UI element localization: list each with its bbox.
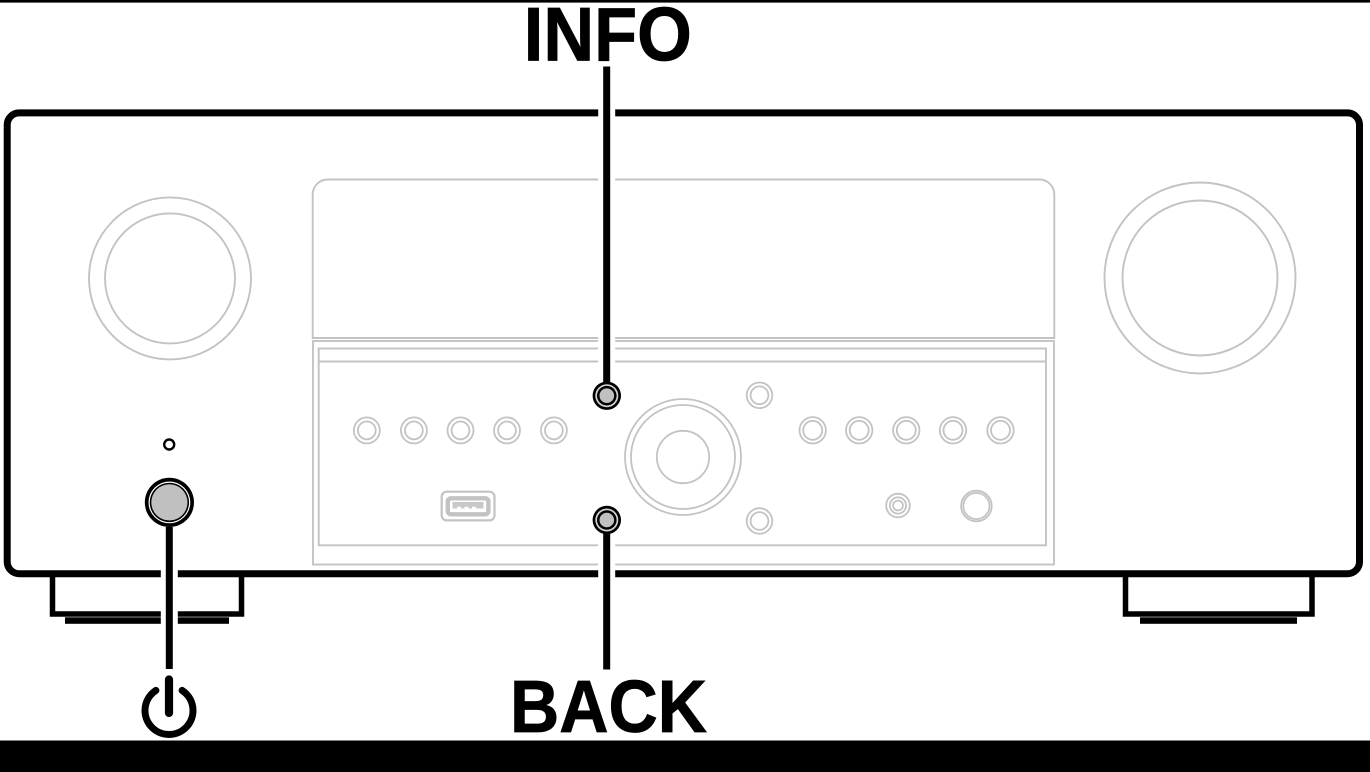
svg-text:BACK: BACK [510,665,707,748]
svg-text:INFO: INFO [524,0,692,77]
